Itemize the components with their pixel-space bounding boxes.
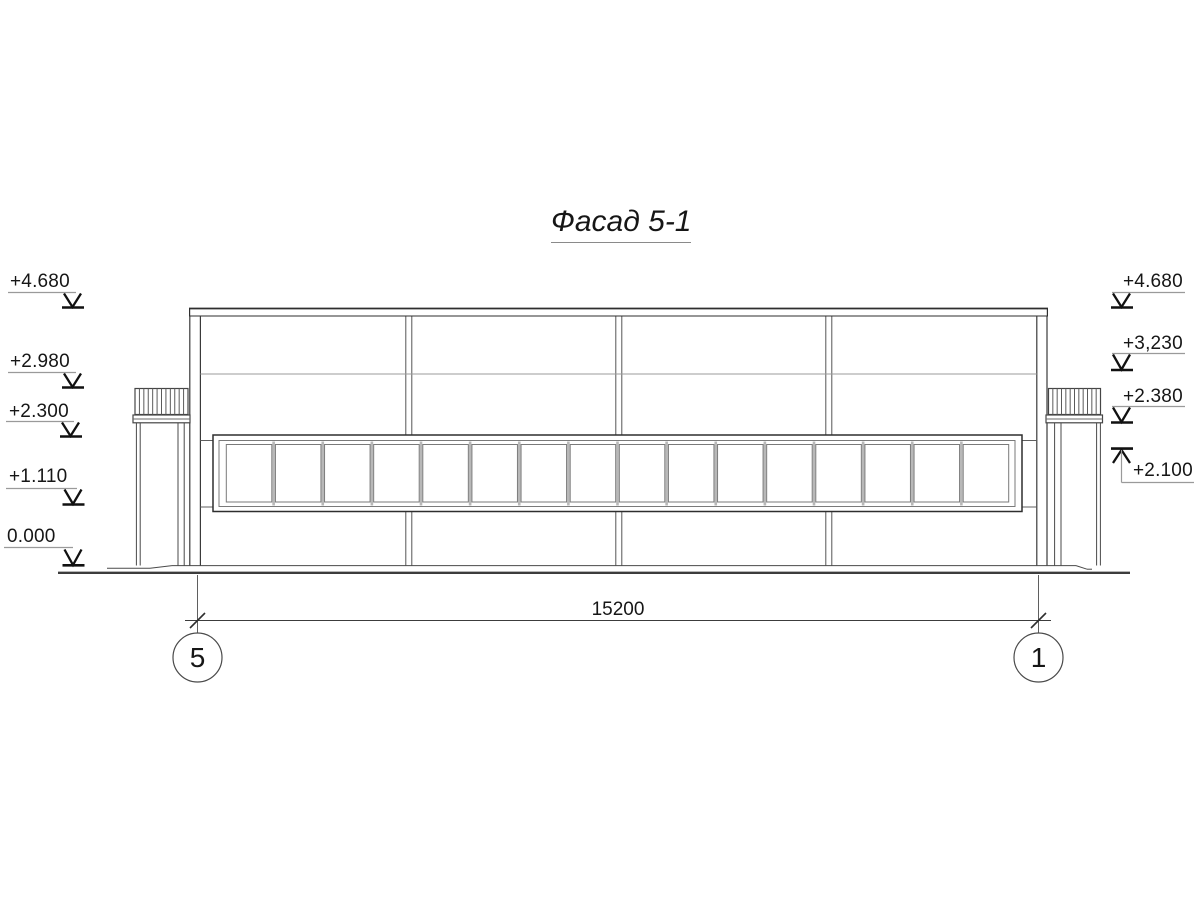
plinth	[107, 566, 1092, 570]
dimension-label: 15200	[568, 600, 668, 619]
level-label-left-2: +2.300	[9, 402, 69, 421]
level-marker-arrow	[8, 293, 84, 308]
level-marker-arrow	[6, 422, 82, 437]
window-band	[213, 435, 1022, 512]
level-marker-arrow	[6, 489, 85, 505]
level-label-right-0: +4.680	[1123, 272, 1183, 291]
right-wall	[1037, 316, 1047, 566]
drawing-title: Фасад 5-1	[551, 207, 691, 243]
level-label-left-3: +1.110	[9, 467, 67, 486]
level-marker-arrow	[1111, 293, 1185, 308]
level-marker-arrow	[1111, 354, 1185, 371]
level-marker-arrow	[1111, 407, 1185, 423]
level-marker-arrow	[4, 548, 85, 566]
level-label-right-1: +3,230	[1123, 334, 1183, 353]
level-label-right-2: +2.380	[1123, 387, 1183, 406]
left-wall	[190, 316, 201, 566]
level-markers-left	[4, 293, 85, 566]
level-label-left-1: +2.980	[10, 352, 70, 371]
facade-elevation-canvas	[0, 0, 1200, 900]
roof-band	[189, 309, 1048, 317]
canopy-right	[1046, 389, 1103, 566]
level-marker-arrow	[8, 373, 84, 388]
axis-number-left: 5	[177, 644, 218, 672]
level-label-left-0: +4.680	[10, 272, 70, 291]
level-label-right-3: +2.100	[1133, 461, 1193, 480]
level-label-left-4: 0.000	[7, 527, 56, 546]
facade-drawing-sheet: Фасад 5-1 +4.680 +2.980 +2.300 +1.110 0.…	[0, 0, 1200, 900]
canopy-left	[133, 389, 190, 566]
axis-number-right: 1	[1018, 644, 1059, 672]
